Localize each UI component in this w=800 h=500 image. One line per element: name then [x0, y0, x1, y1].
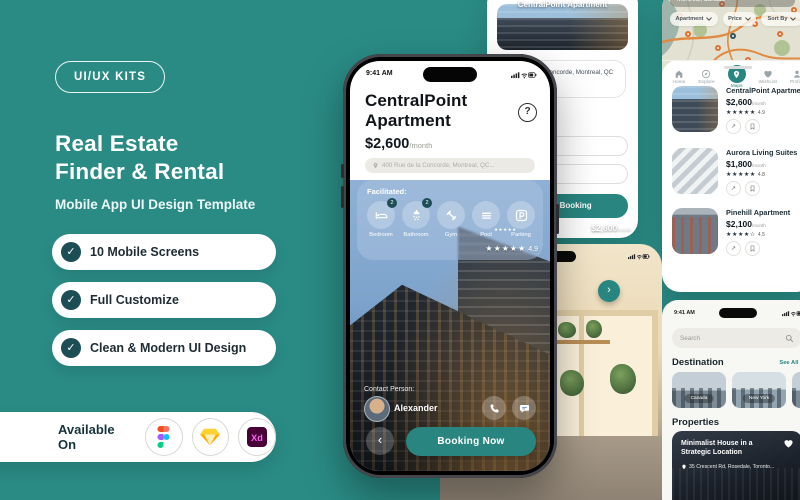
chevron-down-icon	[745, 17, 751, 21]
map-pin-icon	[732, 70, 741, 79]
feature-label: Clean & Modern UI Design	[90, 341, 246, 355]
booking-price-value: $2,600	[591, 223, 617, 233]
heart-icon	[763, 69, 773, 79]
property-address: 35 Crescent Rd, Rosedale, Toronto...	[681, 464, 774, 470]
listing-thumbnail	[672, 86, 718, 132]
heart-icon[interactable]	[783, 438, 794, 449]
filter-label: Apartment	[676, 16, 704, 22]
bookmark-icon[interactable]	[745, 241, 760, 256]
address-pill[interactable]: 400 Rue de la Concorde, Montreal, QC...	[365, 158, 535, 173]
rating-row: ★★★★★4.9	[485, 244, 538, 253]
nav-home[interactable]: Home	[673, 69, 686, 85]
listing-price-suffix: /month	[752, 223, 766, 228]
location-pin-icon	[681, 464, 687, 470]
share-icon[interactable]: ↗	[726, 241, 741, 256]
hero-subtitle: Mobile App UI Design Template	[55, 197, 255, 212]
dynamic-island	[423, 67, 477, 82]
potted-plant	[558, 322, 576, 338]
map-screen: Montreal, Canada Apartment Price Sort By…	[662, 0, 800, 292]
filter-label: Price	[728, 16, 742, 22]
home-screen: 9:41 AM Search Destination See All › Can…	[662, 300, 800, 500]
status-time: 9:41 AM	[674, 310, 695, 316]
available-on-bar: Available On Xd	[0, 412, 276, 462]
booking-property-price: $2,600/month	[591, 223, 631, 233]
figma-icon	[145, 418, 183, 456]
listing-title: Pinehill Apartment	[726, 208, 790, 217]
adobe-xd-label: Xd	[251, 433, 263, 443]
filter-chip-sortby[interactable]: Sort By	[761, 12, 800, 26]
destination-label: New York	[743, 394, 775, 403]
nav-explore[interactable]: Explore	[698, 69, 714, 85]
status-time: 9:41 AM	[366, 70, 393, 77]
rating-stars: ★★★★★	[485, 244, 526, 253]
hero-title-line1: Real Estate	[55, 130, 224, 158]
listing-row[interactable]: Aurora Living Suites $1,800/month ★★★★★4…	[672, 146, 800, 200]
listing-row[interactable]: CentralPoint Apartment $2,600/month ★★★★…	[672, 84, 800, 138]
dynamic-island	[719, 308, 757, 318]
phone-mockup: 9:41 AM CentralPoint Apartment ? $2,600/…	[343, 54, 557, 478]
location-pin-icon	[372, 162, 379, 169]
rating-stars: ★★★★★	[726, 110, 756, 116]
rating-value: 4.5	[758, 232, 765, 238]
contact-name: Alexander	[394, 403, 438, 413]
parking-icon	[515, 209, 528, 222]
property-title: CentralPoint Apartment	[365, 91, 467, 131]
feature-pill: ✓ Full Customize	[52, 282, 276, 318]
bookmark-icon[interactable]	[745, 181, 760, 196]
destination-card-newyork[interactable]: New York	[732, 372, 786, 408]
facility-label: Gym	[445, 232, 457, 238]
destination-card[interactable]	[792, 372, 800, 408]
facility-label: Bedroom	[369, 232, 393, 238]
listing-price: $2,100	[726, 219, 752, 229]
status-icons	[782, 310, 800, 317]
person-icon	[792, 69, 800, 79]
chevron-down-icon	[706, 17, 712, 21]
destination-card-canada[interactable]: Canada	[672, 372, 726, 408]
nav-profile[interactable]: Profile	[790, 69, 800, 85]
avatar	[364, 396, 390, 422]
back-button[interactable]: ‹	[366, 427, 394, 455]
properties-heading: Properties	[672, 417, 719, 428]
filter-chip-price[interactable]: Price	[723, 12, 756, 26]
listing-price-suffix: /month	[752, 101, 766, 106]
hero-title: Real Estate Finder & Rental	[55, 130, 224, 186]
volume-button	[341, 164, 344, 178]
listing-thumbnail	[672, 208, 718, 254]
property-title: Minimalist House in a Strategic Location	[681, 439, 773, 457]
listing-title: Aurora Living Suites	[726, 148, 797, 157]
rating-value: 4.9	[528, 246, 538, 253]
price-suffix: /month	[409, 141, 432, 150]
facilitated-label: Facilitated:	[367, 187, 407, 196]
sketch-icon	[192, 418, 230, 456]
call-button[interactable]	[482, 396, 506, 420]
hanging-plant	[560, 370, 584, 396]
phone-icon	[489, 403, 500, 414]
detail-screen: 9:41 AM CentralPoint Apartment ? $2,600/…	[350, 61, 550, 471]
bed-icon	[375, 209, 388, 222]
hero-title-line2: Finder & Rental	[55, 158, 224, 186]
booking-property-photo	[497, 4, 628, 50]
search-placeholder: Search	[680, 335, 785, 342]
check-icon: ✓	[61, 290, 81, 310]
bookmark-icon[interactable]	[745, 119, 760, 134]
price-value: $2,600	[365, 136, 409, 152]
filter-chip-apartment[interactable]: Apartment	[670, 12, 718, 26]
feature-pill: ✓ Clean & Modern UI Design	[52, 330, 276, 366]
listing-title: CentralPoint Apartment	[726, 86, 800, 95]
map-location-bar[interactable]: Montreal, Canada	[670, 0, 795, 7]
facility-bathroom[interactable]: 2 Bathroom	[398, 201, 434, 238]
property-card[interactable]: Minimalist House in a Strategic Location…	[672, 431, 800, 500]
destination-heading: Destination	[672, 357, 724, 368]
listing-price: $2,600	[726, 97, 752, 107]
adobe-xd-icon: Xd	[238, 418, 276, 456]
feature-label: 10 Mobile Screens	[90, 245, 199, 259]
address-text: 400 Rue de la Concorde, Montreal, QC...	[382, 162, 494, 169]
property-address-text: 35 Crescent Rd, Rosedale, Toronto...	[689, 464, 774, 470]
filter-label: Sort By	[768, 16, 788, 22]
check-icon: ✓	[61, 338, 81, 358]
count-badge: 2	[387, 198, 397, 208]
share-icon[interactable]: ↗	[726, 181, 741, 196]
listing-price-suffix: /month	[752, 163, 766, 168]
property-title-line2: Apartment	[365, 111, 467, 131]
search-input[interactable]: Search	[672, 328, 800, 348]
facility-label: Pool	[480, 232, 492, 238]
rating-stars: ★★★★☆	[726, 232, 756, 238]
rating-stars: ★★★★★	[726, 172, 756, 178]
promo-banner: UI/UX KITS Real Estate Finder & Rental M…	[0, 0, 800, 500]
rating-value: 4.9	[758, 110, 765, 116]
feature-pill: ✓ 10 Mobile Screens	[52, 234, 276, 270]
chat-button[interactable]	[512, 396, 536, 420]
contact-label: Contact Person:	[364, 386, 414, 393]
facility-gym[interactable]: Gym	[433, 201, 469, 238]
status-icons	[511, 71, 537, 79]
listing-price: $1,800	[726, 159, 752, 169]
destination-photo	[792, 372, 800, 408]
listing-row[interactable]: Pinehill Apartment $2,100/month ★★★★☆4.5…	[672, 206, 800, 260]
nav-wishlist[interactable]: WishList	[759, 69, 777, 85]
booking-rating-stars: ★★★★★	[494, 227, 517, 233]
potted-plant	[586, 320, 602, 338]
listing-thumbnail	[672, 148, 718, 194]
home-icon	[674, 69, 684, 79]
help-icon[interactable]: ?	[518, 103, 537, 122]
listings-sheet: CentralPoint Apartment $2,600/month ★★★★…	[662, 60, 800, 292]
volume-button	[341, 186, 344, 208]
search-icon	[785, 334, 794, 343]
check-icon: ✓	[61, 242, 81, 262]
available-on-label: Available On	[58, 422, 136, 452]
hanging-plant	[610, 364, 636, 394]
facility-label: Bathroom	[403, 232, 428, 238]
waves-icon	[480, 209, 493, 222]
rating-value: 4.8	[758, 172, 765, 178]
compass-icon	[701, 69, 711, 79]
booking-now-button[interactable]: Booking Now	[406, 427, 536, 456]
count-badge: 2	[422, 198, 432, 208]
chat-icon	[519, 403, 530, 414]
facility-bedroom[interactable]: 2 Bedroom	[363, 201, 399, 238]
kit-badge: UI/UX KITS	[55, 61, 165, 93]
share-icon[interactable]: ↗	[726, 119, 741, 134]
dumbbell-icon	[445, 209, 458, 222]
booking-property-title: CentralPoint Apartment	[487, 0, 638, 9]
destination-label: Canada	[685, 394, 714, 403]
see-all-link[interactable]: See All ›	[779, 360, 800, 366]
status-icons	[628, 253, 650, 260]
booking-price-suffix: /month	[617, 227, 631, 232]
drag-handle[interactable]	[724, 66, 752, 69]
shower-icon	[410, 209, 423, 222]
feature-label: Full Customize	[90, 293, 179, 307]
power-button	[556, 204, 559, 234]
property-price: $2,600/month	[365, 136, 432, 152]
chevron-down-icon	[790, 17, 796, 21]
next-photo-button[interactable]: ›	[598, 280, 620, 302]
property-title-line1: CentralPoint	[365, 91, 467, 111]
